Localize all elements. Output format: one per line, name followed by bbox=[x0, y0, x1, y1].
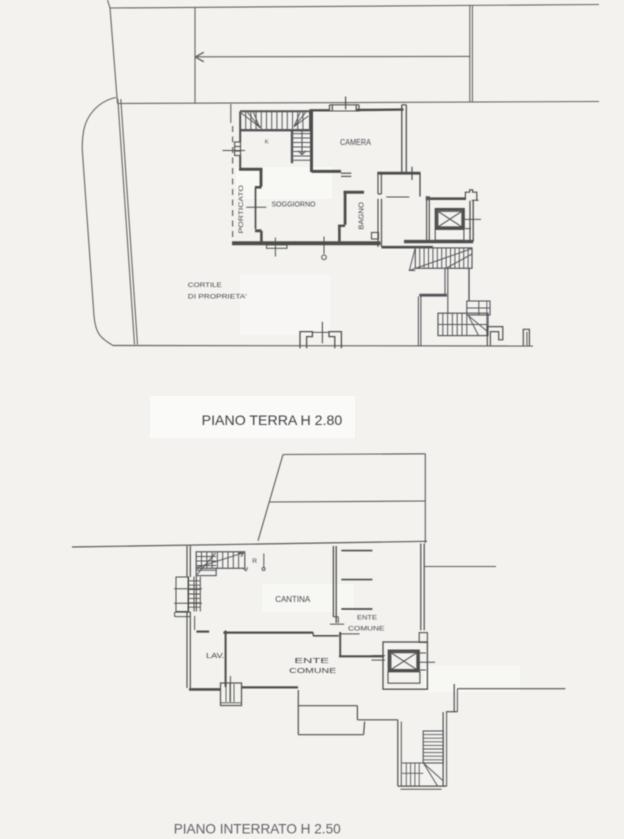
svg-text:R: R bbox=[252, 558, 257, 565]
svg-text:PIANO TERRA H 2.80: PIANO TERRA H 2.80 bbox=[202, 412, 343, 428]
svg-text:PORTICATO: PORTICATO bbox=[238, 185, 245, 234]
svg-text:CORTILE: CORTILE bbox=[188, 282, 223, 289]
svg-text:BAGNO: BAGNO bbox=[358, 201, 365, 229]
svg-text:K: K bbox=[265, 139, 269, 145]
svg-text:ENTE: ENTE bbox=[294, 656, 329, 665]
svg-text:PIANO INTERRATO H 2.50: PIANO INTERRATO H 2.50 bbox=[174, 820, 341, 836]
svg-text:COMUNE: COMUNE bbox=[289, 666, 336, 675]
svg-text:ENTE: ENTE bbox=[357, 614, 378, 621]
svg-text:SOGGIORNO: SOGGIORNO bbox=[272, 201, 317, 208]
svg-text:LAV.: LAV. bbox=[206, 653, 225, 660]
svg-text:DI PROPRIETA': DI PROPRIETA' bbox=[188, 294, 247, 301]
svg-text:CANTINA: CANTINA bbox=[275, 595, 311, 604]
svg-text:CAMERA: CAMERA bbox=[340, 138, 371, 147]
svg-text:COMUNE: COMUNE bbox=[348, 626, 385, 633]
